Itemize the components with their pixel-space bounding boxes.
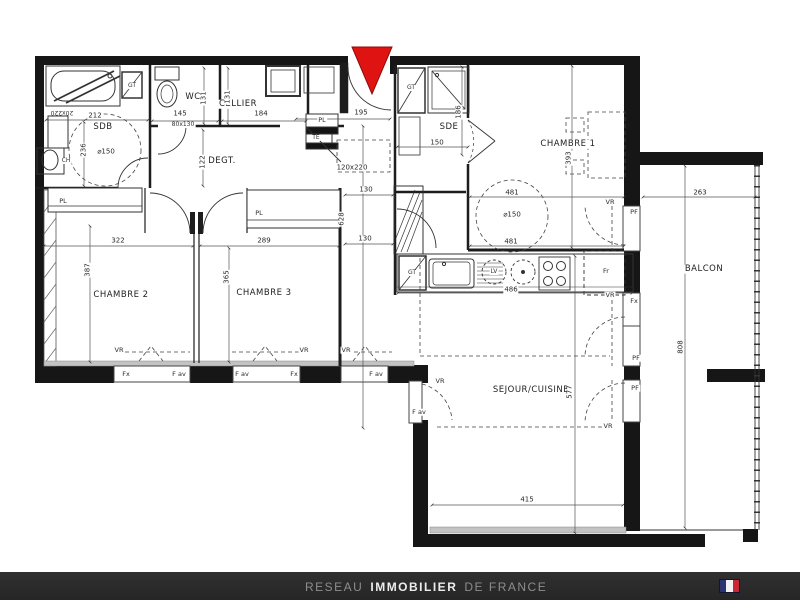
gt-label: GT [406, 85, 416, 91]
vr-label: VR [435, 378, 446, 385]
dim-628: 628 [339, 211, 346, 226]
dim-387: 387 [85, 262, 92, 277]
vr-label: VR [605, 292, 616, 299]
dim-184: 184 [253, 111, 268, 118]
wall-hatching [44, 190, 626, 533]
vr-label: VR [603, 423, 614, 430]
fx-label: Fx [289, 371, 299, 378]
cooktop [539, 257, 570, 290]
dim-131: 131 [225, 89, 232, 104]
footer-banner: RESEAUIMMOBILIERDE FRANCE [0, 572, 800, 600]
fx-label: Fx [629, 298, 639, 305]
floorplan-drawing [0, 0, 800, 600]
dim-263: 263 [692, 190, 707, 197]
dim-20x220: 20x220 [50, 109, 75, 115]
dim-diam150: ⌀150 [502, 212, 522, 219]
dim-365: 365 [224, 269, 231, 284]
vr-label: VR [299, 347, 310, 354]
dim-130: 130 [357, 236, 372, 243]
exterior-walls [35, 56, 765, 547]
room-label-degt: DEGT. [207, 157, 237, 166]
brand-prefix: RESEAU [305, 580, 363, 594]
brand-text: RESEAUIMMOBILIERDE FRANCE [305, 580, 554, 594]
dim-289: 289 [256, 238, 271, 245]
gt-label: GT [127, 83, 137, 89]
closet-label-pl: PL [254, 210, 264, 217]
brand-suffix: DE FRANCE [464, 580, 547, 594]
fixtures [37, 66, 633, 295]
vr-label: VR [114, 347, 125, 354]
dim-145: 145 [172, 111, 187, 118]
dim-diam150: ⌀150 [96, 149, 116, 156]
dim-212: 212 [87, 113, 102, 120]
technical-shaft [394, 186, 423, 254]
fr-label: Fr [602, 268, 610, 275]
dim-120x220: 120x220 [336, 165, 369, 172]
dim-186: 186 [456, 104, 463, 119]
dim-393: 393 [566, 150, 573, 165]
dim-150: 150 [429, 140, 444, 147]
fav-label: F av [411, 409, 427, 416]
pf-label: PF [630, 385, 640, 392]
closet-label-pl: PL [58, 198, 68, 205]
fx-label: Fx [121, 371, 131, 378]
dim-122: 122 [200, 154, 207, 169]
entrance-arrow-icon [352, 47, 392, 94]
room-label-balcon: BALCON [684, 265, 724, 274]
room-label-sde: SDE [439, 123, 460, 132]
room-label-sejour-cuisine: SEJOUR/CUISINE [492, 386, 570, 395]
shower [428, 67, 469, 113]
dim-481: 481 [504, 190, 519, 197]
closet-label-pl: PL [317, 117, 327, 124]
gt-label: GT [407, 270, 417, 276]
balcony-railing [640, 165, 759, 530]
fav-label: F av [234, 371, 250, 378]
oven [511, 260, 535, 284]
chambre1-door [468, 120, 495, 163]
dim-486: 486 [503, 287, 518, 294]
dim-236: 236 [81, 142, 88, 157]
brand-main: IMMOBILIER [370, 580, 457, 594]
france-flag-icon [719, 579, 740, 593]
room-label-chambre1: CHAMBRE 1 [539, 140, 596, 149]
dim-808: 808 [678, 339, 685, 354]
sde-gt-closet [398, 68, 425, 155]
lv-label: LV [490, 269, 499, 275]
fav-label: F av [368, 371, 384, 378]
ch-label: CH [61, 158, 72, 164]
dim-80x130: 80x130 [171, 122, 196, 128]
dim-130: 130 [358, 187, 373, 194]
dim-195: 195 [353, 110, 368, 117]
fav-label: F av [171, 371, 187, 378]
cellier-units [266, 66, 334, 96]
dim-322: 322 [110, 238, 125, 245]
pf-label: PF [629, 209, 639, 216]
bathtub [46, 66, 120, 106]
pf-label: PF [631, 355, 641, 362]
vr-label: VR [341, 347, 352, 354]
dim-481: 481 [503, 239, 518, 246]
dim-131: 131 [201, 90, 208, 105]
room-label-chambre2: CHAMBRE 2 [92, 291, 149, 300]
dim-577: 577 [567, 384, 574, 399]
vr-label: VR [605, 199, 616, 206]
room-label-sdb: SDB [92, 123, 113, 132]
dim-415: 415 [519, 497, 534, 504]
te-label: TE [311, 135, 320, 141]
flag-red-band [733, 580, 739, 592]
floorplan-page: SDB WC CELLIER DEGT. SDE CHAMBRE 1 CHAMB… [0, 0, 800, 600]
room-label-chambre3: CHAMBRE 3 [235, 289, 292, 298]
toilet [155, 67, 179, 107]
